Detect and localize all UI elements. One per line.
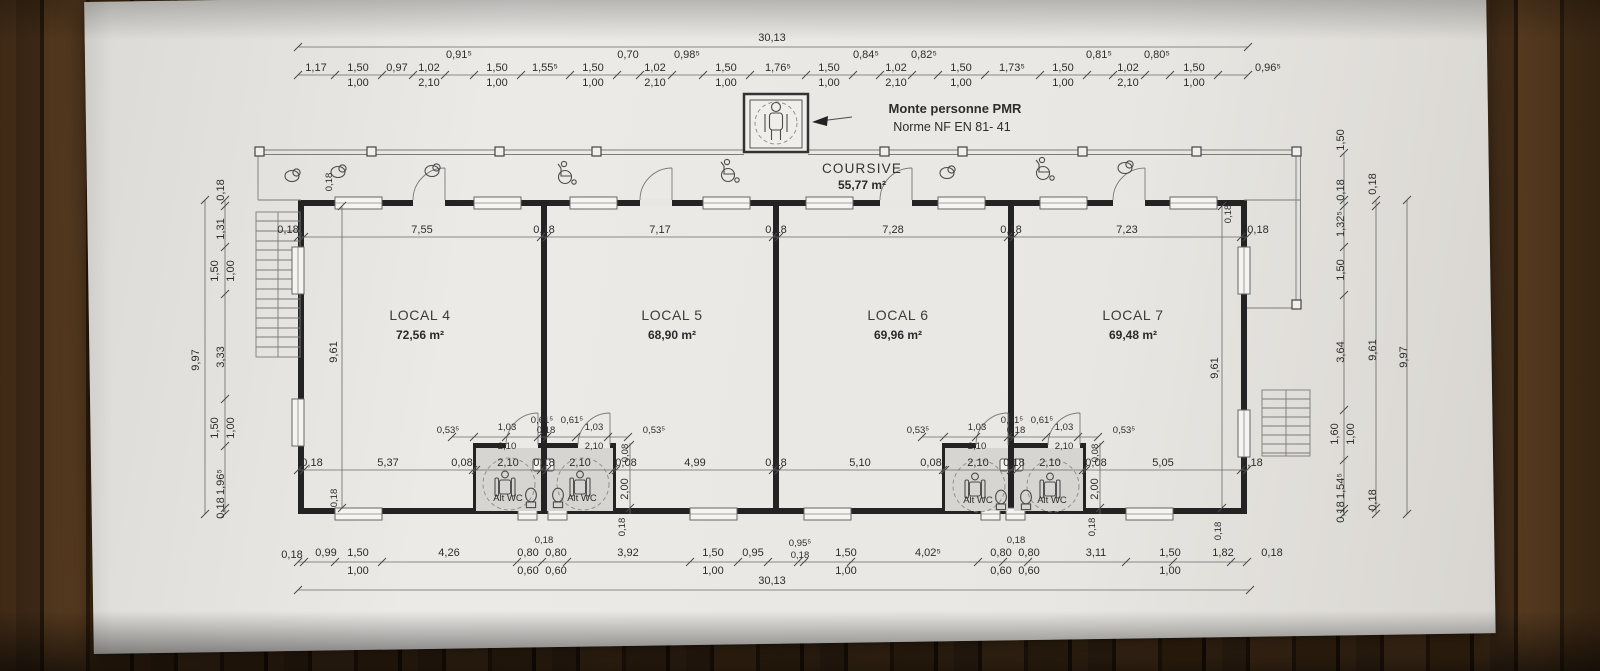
dim-label: 1,00	[1345, 423, 1357, 444]
dim-label: 0,18	[537, 425, 556, 436]
dim-label: 7,28	[882, 224, 903, 236]
dim-label: 1,50	[835, 547, 856, 559]
dim-label: 2,10	[569, 457, 590, 469]
window	[690, 508, 737, 520]
person-icon	[1118, 161, 1133, 174]
dim-label: 0,60	[990, 565, 1011, 577]
elevator-subtitle: Norme NF EN 81- 41	[893, 120, 1010, 134]
window	[806, 197, 853, 209]
wheelchair-icon	[558, 161, 576, 184]
dim-label: 2,10	[497, 457, 518, 469]
dim-label: 1,00	[225, 260, 237, 281]
window	[1238, 247, 1250, 294]
coursive-name: COURSIVE	[822, 161, 902, 176]
dim-label: 0,61⁵	[1031, 415, 1053, 426]
dim-label: 0,18	[617, 518, 628, 537]
dim-label: 1,00	[582, 77, 603, 89]
dim-label: 1,00	[1159, 565, 1180, 577]
dim-label: 0,08	[451, 457, 472, 469]
dim-label: 1,50	[1052, 62, 1073, 74]
window	[335, 508, 382, 520]
dim-label: 0,18	[1335, 179, 1347, 200]
dim-label: 1,50	[1183, 62, 1204, 74]
dim-label: 0,60	[545, 565, 566, 577]
dim-right-overall: 9,97	[1398, 196, 1411, 518]
window	[1170, 197, 1217, 209]
dim-label: 0,18	[1247, 224, 1268, 236]
dim-label: 1,00	[1052, 77, 1073, 89]
dim-label: 0,80	[1018, 547, 1039, 559]
dim-label: 0,18	[765, 457, 786, 469]
dim-label: 3,92	[617, 547, 638, 559]
dim-bottom-overall: 30,13	[294, 575, 1254, 594]
dim-label: 2,10	[1055, 441, 1074, 452]
dim-label: 1,50	[486, 62, 507, 74]
dim-label: 1,54⁵	[1335, 473, 1347, 499]
dim-right-inner: 0,18 9,61 0,18	[1367, 173, 1380, 518]
room-area: 72,56 m²	[396, 328, 444, 342]
dim-label: 1,32⁵	[1335, 211, 1347, 237]
coursive-area: 55,77 m²	[838, 178, 886, 192]
dim-label: 1,03	[968, 422, 987, 433]
dim-label: 0,18	[277, 224, 298, 236]
dim-label: 0,97	[386, 62, 407, 74]
dim-label: 9,61	[328, 341, 340, 362]
person-icon	[940, 166, 955, 179]
dim-label: 4,26	[438, 547, 459, 559]
dim-label: 7,55	[411, 224, 432, 236]
window	[804, 508, 851, 520]
dim-label: 0,18	[1335, 501, 1347, 522]
dim-label: 0,80	[517, 547, 538, 559]
dim-label: 1,31	[215, 218, 227, 239]
dim-label: 1,50	[582, 62, 603, 74]
dim-wc-vertical-left: 0,08 2,00 0,18	[617, 441, 634, 536]
dim-label: 1,00	[715, 77, 736, 89]
wc-label: Alt WC	[963, 495, 993, 506]
dim-label: 0,91⁵	[446, 49, 472, 61]
dim-label: 1,00	[818, 77, 839, 89]
dim-label: 0,18	[533, 224, 554, 236]
dim-label: 0,84⁵	[853, 49, 879, 61]
dim-label: 2,10	[644, 77, 665, 89]
dim-label: 0,08	[1090, 444, 1101, 463]
dim-wc-vertical-right: 0,08 2,00 0,18	[1087, 441, 1104, 536]
stairs-right	[1262, 390, 1310, 456]
dim-label: 0,08	[920, 457, 941, 469]
dim-label: 7,17	[649, 224, 670, 236]
room-name: LOCAL 4	[389, 307, 450, 323]
window	[1238, 410, 1250, 457]
dim-label: 0,82⁵	[911, 49, 937, 61]
dim-label: 0,18	[1223, 205, 1234, 224]
dim-label: 1,03	[1055, 422, 1074, 433]
dim-label: 0,18	[1367, 173, 1379, 194]
window	[703, 197, 750, 209]
dim-label: 5,37	[377, 457, 398, 469]
dim-label: 0,18	[1087, 518, 1098, 537]
dim-label: 0,08	[620, 444, 631, 463]
dim-label: 1,02	[885, 62, 906, 74]
window	[938, 197, 985, 209]
dim-label: 5,05	[1152, 457, 1173, 469]
dim-label: 1,82	[1212, 547, 1233, 559]
dim-label: 0,18	[1241, 457, 1262, 469]
dim-label: 0,70	[617, 49, 638, 61]
dim-label: 2,10	[967, 457, 988, 469]
dim-label: 2,10	[418, 77, 439, 89]
dim-label: 1,00	[225, 417, 237, 438]
dim-label: 7,23	[1116, 224, 1137, 236]
dim-label: 0,61⁵	[561, 415, 583, 426]
dim-label: 0,18	[791, 550, 810, 561]
dim-label: 0,18	[533, 457, 554, 469]
dim-label: 1,03	[498, 422, 517, 433]
dim-label: 0,53⁵	[437, 425, 459, 436]
room-area: 69,96 m²	[874, 328, 922, 342]
dim-label: 1,96⁵	[215, 469, 227, 495]
dim-label: 9,61	[1367, 339, 1379, 360]
dim-label: 0,18	[324, 173, 335, 192]
dim-label: 0,60	[517, 565, 538, 577]
dim-label: 0,18	[1261, 547, 1282, 559]
dim-label: 3,33	[215, 346, 227, 367]
dim-label: 3,11	[1086, 547, 1107, 559]
dim-label: 1,55⁵	[532, 62, 558, 74]
dim-label: 0,98⁵	[674, 49, 700, 61]
dim-label: 2,10	[885, 77, 906, 89]
dim-label: 0,53⁵	[1113, 425, 1135, 436]
dim-label: 2,10	[498, 441, 517, 452]
wc-label: Alt WC	[1037, 495, 1067, 506]
dim-right-chain: 1,50 0,18 1,32⁵ 1,50 3,64 1,60 1,00 1,54…	[1329, 129, 1357, 522]
window	[1040, 197, 1087, 209]
dim-label: 0,99	[315, 547, 336, 559]
dim-label: 1,00	[1183, 77, 1204, 89]
dim-label: 5,10	[849, 457, 870, 469]
dim-label: 1,17	[305, 62, 326, 74]
dim-label: 0,18	[535, 535, 554, 546]
wc-label: Alt WC	[493, 493, 523, 504]
dim-label: 9,97	[190, 349, 202, 370]
dim-label: 2,10	[585, 441, 604, 452]
dim-label: 0,18	[215, 179, 227, 200]
elevator-callout: Monte personne PMR Norme NF EN 81- 41	[812, 101, 1022, 134]
window	[474, 197, 521, 209]
dim-label: 9,61	[1209, 357, 1221, 378]
dim-label: 1,02	[644, 62, 665, 74]
dim-label: 0,95	[742, 547, 763, 559]
dim-label: 1,00	[347, 77, 368, 89]
dim-label: 0,18	[329, 489, 340, 508]
dim-left-chain: 0,18 1,31 1,50 1,00 3,33 1,50 1,00 1,96⁵…	[209, 179, 237, 518]
wc-label: Alt WC	[567, 493, 597, 504]
dim-left-overall: 9,97	[190, 196, 209, 518]
coursive-icons	[285, 157, 1133, 184]
dim-label: 30,13	[758, 32, 786, 44]
dim-label: 0,18	[281, 549, 302, 561]
dim-label: 0,18	[765, 224, 786, 236]
dim-label: 0,18	[1003, 457, 1024, 469]
dim-label: 0,18	[1000, 224, 1021, 236]
dim-label: 1,50	[347, 547, 368, 559]
dim-label: 3,64	[1335, 341, 1347, 362]
dim-label: 1,50	[209, 260, 221, 281]
dim-label: 9,97	[1398, 346, 1410, 367]
room-name: LOCAL 7	[1102, 307, 1163, 323]
dim-label: 1,50	[818, 62, 839, 74]
dim-label: 1,50	[715, 62, 736, 74]
floor-plan: Monte personne PMR Norme NF EN 81- 41 CO…	[0, 0, 1600, 671]
dim-bottom-chain: 0,18 0,99 1,50 1,00 4,26 0,18 0,80 0,60 …	[281, 535, 1282, 577]
dim-top-chain: 1,17 1,50 1,00 0,97 1,02 2,10 0,91⁵ 1,50…	[294, 49, 1281, 89]
arrow-icon	[812, 116, 828, 126]
dim-label: 0,80⁵	[1144, 49, 1170, 61]
window	[292, 247, 304, 294]
dim-label: 0,80	[545, 547, 566, 559]
dim-label: 1,02	[1117, 62, 1138, 74]
dim-label: 1,00	[950, 77, 971, 89]
dim-label: 1,60	[1329, 423, 1341, 444]
dim-label: 0,53⁵	[643, 425, 665, 436]
person-icon	[285, 169, 300, 182]
window	[1126, 508, 1173, 520]
window	[292, 399, 304, 446]
dim-label: 1,00	[835, 565, 856, 577]
dim-label: 30,13	[758, 575, 786, 587]
dim-label: 0,95⁵	[789, 538, 811, 549]
room-name: LOCAL 6	[867, 307, 928, 323]
dim-label: 1,50	[209, 417, 221, 438]
dim-label: 1,00	[486, 77, 507, 89]
dim-label: 2,10	[1039, 457, 1060, 469]
room-name: LOCAL 5	[641, 307, 702, 323]
dim-label: 0,18	[1367, 489, 1379, 510]
dim-label: 1,03	[585, 422, 604, 433]
room-area: 68,90 m²	[648, 328, 696, 342]
dim-label: 0,18	[215, 497, 227, 518]
dim-label: 1,50	[347, 62, 368, 74]
dim-label: 0,18	[1007, 535, 1026, 546]
dim-label: 1,50	[1159, 547, 1180, 559]
dim-label: 2,00	[619, 478, 631, 499]
dim-label: 1,50	[950, 62, 971, 74]
elevator-symbol	[744, 94, 808, 152]
dim-label: 1,73⁵	[999, 62, 1025, 74]
dim-label: 0,96⁵	[1255, 62, 1281, 74]
dim-label: 1,50	[702, 547, 723, 559]
room-area: 69,48 m²	[1109, 328, 1157, 342]
dim-label: 0,18	[1213, 522, 1224, 541]
wheelchair-icon	[1036, 157, 1054, 180]
dim-label: 1,50	[1335, 129, 1347, 150]
dim-label: 0,53⁵	[907, 425, 929, 436]
elevator-title: Monte personne PMR	[889, 101, 1023, 116]
wheelchair-icon	[721, 159, 739, 182]
dim-label: 4,99	[684, 457, 705, 469]
dim-label: 2,10	[968, 441, 987, 452]
dim-label: 1,50	[1335, 259, 1347, 280]
dim-label: 0,18	[301, 457, 322, 469]
window	[570, 197, 617, 209]
dim-label: 1,00	[702, 565, 723, 577]
dim-label: 4,02⁵	[915, 547, 941, 559]
dim-label: 2,10	[1117, 77, 1138, 89]
dim-label: 1,02	[418, 62, 439, 74]
dim-label: 0,18	[1007, 425, 1026, 436]
dim-label: 0,80	[990, 547, 1011, 559]
dim-label: 1,76⁵	[765, 62, 791, 74]
dim-label: 2,00	[1089, 478, 1101, 499]
dim-label: 0,81⁵	[1086, 49, 1112, 61]
dim-label: 1,00	[347, 565, 368, 577]
dim-label: 0,60	[1018, 565, 1039, 577]
